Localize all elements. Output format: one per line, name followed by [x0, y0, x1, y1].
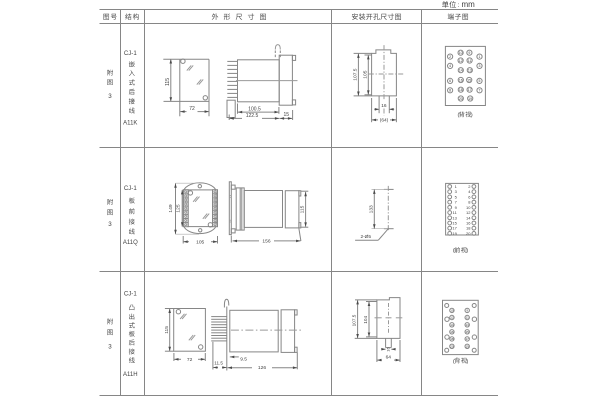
svg-text:CJ-1: CJ-1	[124, 185, 137, 192]
svg-text:3: 3	[479, 64, 481, 68]
svg-text:7: 7	[479, 89, 481, 93]
svg-text:14: 14	[450, 323, 454, 327]
svg-text:18: 18	[450, 337, 454, 341]
svg-text:15: 15	[466, 330, 470, 334]
svg-text:2: 2	[449, 55, 451, 59]
svg-text:(64): (64)	[380, 117, 389, 123]
svg-text:3: 3	[108, 93, 112, 100]
svg-text:A11K: A11K	[123, 121, 137, 127]
svg-text:115: 115	[164, 326, 170, 334]
svg-text:mm: mm	[462, 0, 476, 9]
svg-text:1: 1	[479, 55, 481, 59]
svg-text:12: 12	[450, 316, 454, 320]
svg-text:14: 14	[459, 69, 463, 73]
svg-text:6: 6	[449, 79, 451, 83]
svg-text:125: 125	[176, 204, 182, 212]
svg-text:A11H: A11H	[123, 372, 138, 378]
svg-text:126: 126	[258, 365, 266, 371]
svg-text:72: 72	[189, 106, 195, 112]
svg-text:13: 13	[466, 323, 470, 327]
svg-text:13: 13	[468, 69, 472, 73]
svg-text:11: 11	[468, 59, 472, 63]
svg-text:115: 115	[300, 205, 306, 213]
svg-text:12: 12	[459, 59, 463, 63]
svg-text:15: 15	[467, 78, 471, 82]
svg-text:): )	[471, 113, 473, 119]
svg-text:156: 156	[262, 238, 270, 244]
svg-text:19: 19	[468, 97, 472, 101]
svg-text:CJ-1: CJ-1	[124, 50, 137, 57]
svg-text:18: 18	[459, 88, 463, 92]
svg-text:3: 3	[108, 343, 112, 350]
svg-text:149: 149	[168, 204, 174, 212]
svg-text:9.5: 9.5	[240, 357, 247, 363]
svg-text:(: (	[453, 359, 455, 365]
svg-text:5: 5	[479, 79, 481, 83]
svg-text:107.5: 107.5	[353, 68, 359, 81]
svg-text:115: 115	[165, 78, 171, 86]
svg-text:100.5: 100.5	[248, 106, 261, 112]
svg-text:105: 105	[196, 240, 204, 246]
svg-text:): )	[466, 248, 468, 254]
svg-text:8: 8	[449, 89, 451, 93]
svg-text:15: 15	[284, 112, 290, 118]
svg-text:16: 16	[459, 78, 463, 82]
svg-text:104: 104	[363, 316, 368, 324]
svg-text:Ø5: Ø5	[365, 234, 372, 240]
svg-text:17: 17	[468, 88, 472, 92]
svg-text:10: 10	[450, 309, 454, 313]
svg-text:20: 20	[450, 345, 454, 349]
svg-text:11.5: 11.5	[214, 360, 223, 365]
svg-text:17: 17	[466, 337, 470, 341]
svg-text:16: 16	[450, 330, 454, 334]
svg-text:105: 105	[362, 70, 368, 78]
svg-text:CJ-1: CJ-1	[124, 291, 137, 298]
svg-text:): )	[466, 359, 468, 365]
svg-text:9: 9	[468, 51, 470, 55]
svg-text:20: 20	[459, 97, 463, 101]
svg-text:72: 72	[187, 357, 193, 363]
svg-text:19: 19	[466, 345, 470, 349]
svg-text:(: (	[453, 248, 455, 254]
svg-text:20: 20	[466, 231, 471, 236]
svg-text:11: 11	[466, 316, 469, 320]
svg-text::: :	[458, 2, 460, 9]
svg-text:16: 16	[386, 347, 391, 352]
svg-text:107.5: 107.5	[351, 314, 356, 326]
svg-text:4: 4	[449, 64, 451, 68]
svg-text:3: 3	[108, 221, 112, 228]
svg-text:133: 133	[368, 205, 374, 213]
svg-text:A11Q: A11Q	[123, 240, 138, 246]
svg-text:10: 10	[459, 51, 463, 55]
svg-text:122.5: 122.5	[246, 113, 259, 119]
svg-text:19: 19	[452, 231, 457, 236]
svg-text:16: 16	[381, 103, 387, 109]
svg-text:64: 64	[386, 355, 392, 361]
